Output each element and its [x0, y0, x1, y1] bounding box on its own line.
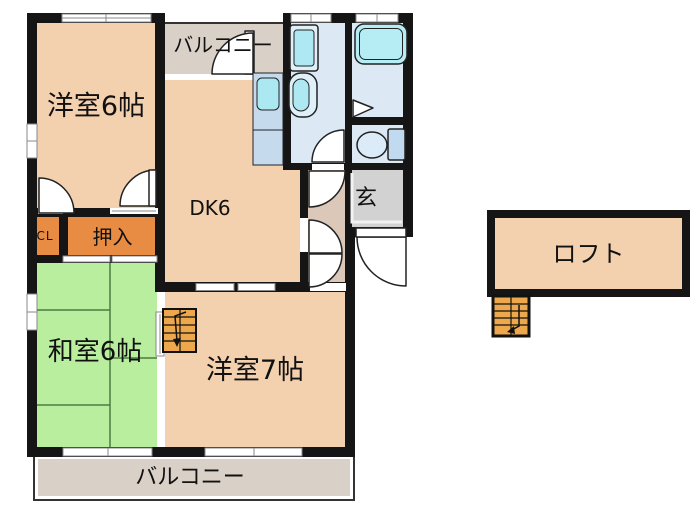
label-dk: DK6 — [180, 195, 240, 221]
washing-machine-drum — [294, 30, 314, 66]
label-oshiire: 押入 — [68, 223, 157, 250]
door-opening — [312, 164, 344, 170]
sliding-door-panel — [63, 256, 110, 262]
label-loft: ロフト — [495, 238, 682, 270]
kitchen-sink — [257, 78, 279, 110]
label-japanese6: 和室6帖 — [34, 334, 156, 370]
door-leaf — [149, 170, 156, 206]
sliding-door-panel — [238, 284, 275, 291]
label-western6: 洋室6帖 — [37, 88, 155, 124]
label-balcony-top: バルコニー — [160, 31, 286, 59]
label-genkan: 玄 — [349, 184, 383, 214]
door-arc — [309, 171, 345, 207]
door-opening — [300, 218, 308, 252]
door-arc — [39, 178, 74, 213]
entrance-door-leaf — [356, 228, 406, 237]
door-arc — [309, 220, 342, 253]
label-western7: 洋室7帖 — [180, 352, 330, 388]
wash-basin-bowl — [293, 79, 309, 111]
folding-door-mark — [353, 100, 373, 117]
entrance-door-arc — [357, 237, 406, 286]
staircase — [163, 309, 196, 352]
label-balcony-bottom: バルコニー — [60, 463, 320, 493]
door-arc — [309, 254, 342, 287]
sliding-door-panel — [112, 256, 157, 262]
sliding-door-panel — [196, 284, 234, 291]
toilet-tank — [388, 129, 405, 160]
door-arc — [312, 130, 344, 162]
toilet-bowl — [357, 132, 387, 158]
label-cl: CL — [31, 223, 59, 249]
floorplan: 洋室6帖 バルコニー DK6 玄 CL 押入 和室6帖 洋室7帖 バルコニー ロ… — [0, 0, 700, 525]
loft-staircase — [493, 296, 529, 336]
bathtub — [355, 24, 407, 64]
